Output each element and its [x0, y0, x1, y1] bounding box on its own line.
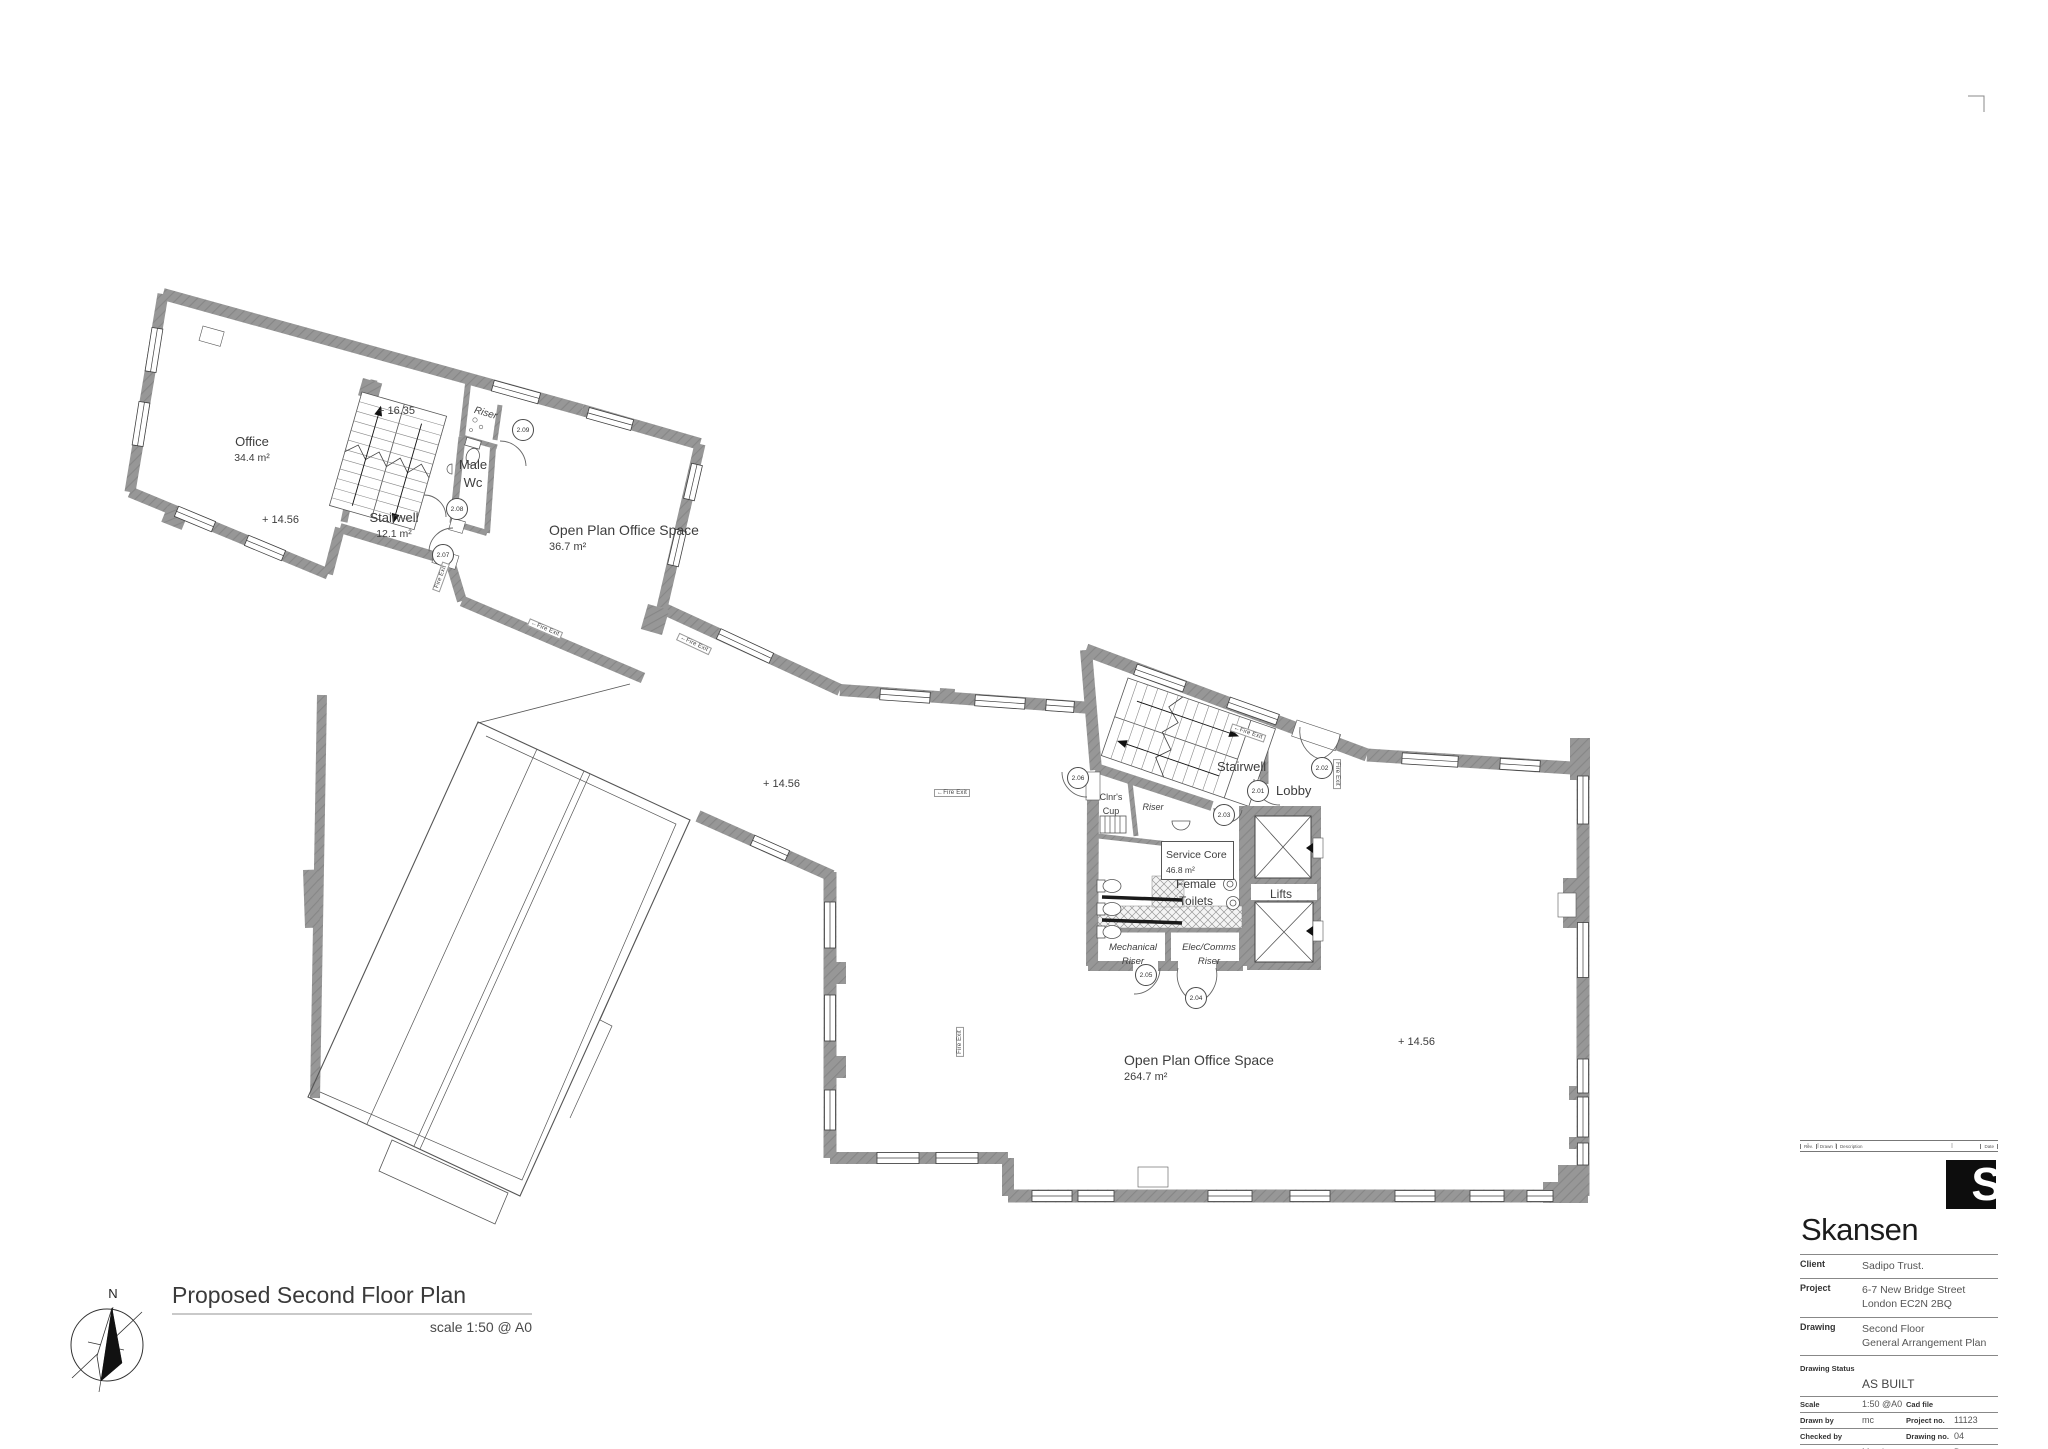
revision-col-description: Description — [1836, 1144, 1866, 1149]
revision-col-drawn: Drawn — [1816, 1144, 1836, 1149]
lift-shafts — [1247, 806, 1323, 970]
titleblock-row-status: Drawing Status AS BUILT — [1800, 1355, 1998, 1396]
titleblock-row-scale: Scale 1:50 @A0 Cad file — [1800, 1396, 1998, 1412]
titleblock-row-drawing: Drawing Second Floor General Arrangement… — [1800, 1317, 1998, 1355]
floor-plan-drawing — [0, 0, 2048, 1449]
north-label: N — [108, 1286, 117, 1302]
revision-col-rev: Rev. — [1800, 1144, 1816, 1149]
walls-layer — [130, 294, 1583, 1196]
sheet-marks — [1808, 96, 1984, 1148]
titleblock-row-project: Project 6-7 New Bridge Street London EC2… — [1800, 1278, 1998, 1316]
stairs-upper — [329, 392, 446, 530]
revision-col-date: Date — [1980, 1144, 1998, 1149]
titleblock-row-date: Date March 2012 Revision D — [1800, 1444, 1998, 1449]
floor-plan-sheet: Office34.4 m²Stairwell12.1 m²MaleWcRiser… — [0, 0, 2048, 1449]
title-rule — [172, 1313, 532, 1315]
skansen-logo: S — [1946, 1160, 1996, 1209]
revision-strip: Rev. Drawn Description Date — [1800, 1140, 1998, 1152]
stairs-core — [1101, 678, 1275, 806]
brand-name: Skansen — [1801, 1212, 1998, 1248]
adjacent-roof-structure — [308, 684, 690, 1224]
north-arrow — [71, 1307, 143, 1392]
page-title: Proposed Second Floor Plan — [172, 1282, 466, 1309]
titleblock-row-drawnby: Drawn by mc Project no. 11123 — [1800, 1412, 1998, 1428]
title-block: Rev. Drawn Description Date S Skansen Cl… — [1800, 1140, 1998, 1449]
scale-note: scale 1:50 @ A0 — [332, 1319, 532, 1335]
toilet-fixtures — [447, 418, 1242, 939]
titleblock-row-checkedby: Checked by Drawing no. 04 — [1800, 1428, 1998, 1444]
titleblock-row-client: Client Sadipo Trust. — [1800, 1254, 1998, 1278]
